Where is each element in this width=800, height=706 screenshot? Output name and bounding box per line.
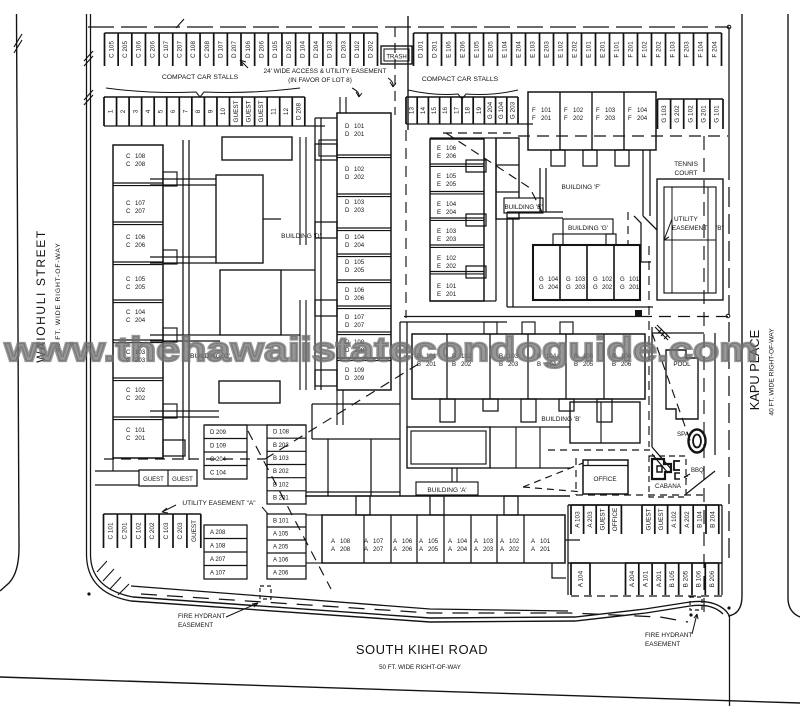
svg-text:201: 201 (446, 291, 457, 298)
svg-text:204: 204 (637, 115, 648, 122)
svg-text:207: 207 (135, 208, 146, 215)
svg-text:E: E (437, 228, 441, 235)
svg-text:50 FT. WIDE RIGHT-OF-WAY: 50 FT. WIDE RIGHT-OF-WAY (379, 664, 461, 671)
svg-text:101: 101 (354, 123, 365, 130)
svg-text:6: 6 (170, 109, 177, 113)
svg-text:102: 102 (602, 276, 613, 283)
svg-text:206: 206 (402, 546, 413, 553)
svg-text:E 106: E 106 (446, 41, 453, 58)
svg-text:E 104: E 104 (502, 41, 509, 58)
svg-text:8: 8 (195, 109, 202, 113)
svg-text:UTILITY EASEMENT "A": UTILITY EASEMENT "A" (182, 500, 256, 507)
svg-text:C 208: C 208 (204, 41, 211, 58)
svg-text:D: D (345, 259, 350, 266)
svg-text:203: 203 (483, 546, 494, 553)
svg-text:C: C (126, 153, 131, 160)
svg-text:203: 203 (354, 207, 365, 214)
svg-text:17: 17 (453, 107, 460, 115)
svg-text:F: F (596, 107, 600, 114)
svg-text:E 105: E 105 (474, 41, 481, 58)
svg-text:106: 106 (135, 234, 146, 241)
svg-text:D: D (345, 174, 350, 181)
svg-text:D: D (345, 295, 350, 302)
svg-text:A 102: A 102 (671, 511, 678, 528)
svg-text:EASEMENT: EASEMENT (178, 622, 213, 629)
svg-text:C 105: C 105 (108, 41, 115, 58)
svg-text:103: 103 (483, 538, 494, 545)
svg-text:104: 104 (548, 276, 559, 283)
svg-text:C 206: C 206 (149, 41, 156, 58)
svg-text:F: F (532, 115, 536, 122)
svg-text:C: C (126, 234, 131, 241)
svg-text:BUILDING 'F': BUILDING 'F' (562, 184, 601, 191)
svg-text:F: F (564, 115, 568, 122)
svg-text:B 104: B 104 (697, 511, 704, 528)
svg-text:E 201: E 201 (600, 41, 607, 58)
svg-text:C: C (126, 284, 131, 291)
svg-text:202: 202 (446, 263, 457, 270)
svg-text:C: C (126, 309, 131, 316)
svg-text:C: C (126, 200, 131, 207)
svg-text:F: F (564, 107, 568, 114)
svg-text:D 201: D 201 (432, 41, 439, 58)
svg-text:FIRE HYDRANT: FIRE HYDRANT (178, 613, 225, 620)
svg-text:B 101: B 101 (273, 519, 289, 525)
svg-text:202: 202 (354, 174, 365, 181)
svg-text:D: D (345, 123, 350, 130)
svg-text:106: 106 (402, 538, 413, 545)
svg-text:D 101: D 101 (418, 41, 425, 58)
svg-text:13: 13 (409, 107, 416, 115)
svg-text:D 204: D 204 (313, 41, 320, 58)
svg-text:E 102: E 102 (558, 41, 565, 58)
svg-text:104: 104 (637, 107, 648, 114)
svg-text:G: G (620, 284, 625, 291)
svg-text:www.thehawaiistatecondoguide.c: www.thehawaiistatecondoguide.com (3, 331, 757, 369)
svg-text:F 102: F 102 (642, 41, 649, 58)
svg-text:A 108: A 108 (210, 543, 226, 549)
svg-text:204: 204 (548, 284, 559, 291)
svg-text:105: 105 (428, 538, 439, 545)
svg-text:D 105: D 105 (272, 41, 279, 58)
svg-text:D: D (345, 322, 350, 329)
svg-text:G 101: G 101 (713, 105, 720, 123)
svg-text:D: D (345, 131, 350, 138)
svg-text:D: D (345, 375, 350, 382)
svg-text:4: 4 (145, 109, 152, 113)
svg-text:G 102: G 102 (687, 105, 694, 123)
svg-text:OFFICE: OFFICE (593, 476, 616, 483)
svg-text:CABANA: CABANA (655, 483, 682, 490)
svg-text:C: C (126, 317, 131, 324)
svg-text:D 202: D 202 (368, 41, 375, 58)
svg-text:G: G (620, 276, 625, 283)
svg-text:C 108: C 108 (190, 41, 197, 58)
svg-text:C: C (126, 427, 131, 434)
svg-text:F 104: F 104 (698, 41, 705, 58)
svg-text:7: 7 (183, 109, 190, 113)
svg-text:F 204: F 204 (712, 41, 719, 58)
svg-text:'B': 'B' (716, 225, 723, 232)
svg-text:103: 103 (605, 107, 616, 114)
svg-text:40 FT. WIDE RIGHT-OF-WAY: 40 FT. WIDE RIGHT-OF-WAY (769, 328, 776, 416)
svg-text:D 103: D 103 (327, 41, 334, 58)
svg-text:101: 101 (446, 283, 457, 290)
svg-text:BUILDING 'D': BUILDING 'D' (281, 233, 321, 240)
svg-text:A 104: A 104 (578, 570, 585, 587)
svg-text:E: E (437, 181, 441, 188)
svg-text:GUEST: GUEST (658, 508, 665, 530)
svg-text:3: 3 (132, 109, 139, 113)
svg-text:201: 201 (354, 131, 365, 138)
svg-text:208: 208 (135, 161, 146, 168)
svg-text:C 204: C 204 (210, 457, 227, 463)
svg-text:C 101: C 101 (107, 522, 114, 539)
svg-text:GUEST: GUEST (645, 508, 652, 530)
svg-text:205: 205 (135, 284, 146, 291)
svg-text:D 207: D 207 (231, 41, 238, 58)
svg-text:F 202: F 202 (656, 41, 663, 58)
svg-text:102: 102 (446, 255, 457, 262)
svg-text:101: 101 (541, 107, 552, 114)
svg-text:D: D (345, 242, 350, 249)
svg-text:12: 12 (283, 108, 290, 116)
svg-text:G: G (593, 284, 598, 291)
svg-text:COMPACT CAR STALLS: COMPACT CAR STALLS (162, 74, 239, 81)
svg-text:BUILDING 'G': BUILDING 'G' (568, 225, 608, 232)
svg-text:E: E (437, 209, 441, 216)
svg-text:F: F (596, 115, 600, 122)
svg-text:E: E (437, 236, 441, 243)
svg-text:F: F (628, 115, 632, 122)
svg-text:E 202: E 202 (572, 41, 579, 58)
svg-text:205: 205 (428, 546, 439, 553)
svg-text:EASEMENT: EASEMENT (672, 225, 707, 232)
svg-text:D: D (345, 166, 350, 173)
svg-text:C 203: C 203 (177, 522, 184, 539)
svg-text:11: 11 (270, 108, 277, 115)
svg-text:C: C (126, 208, 131, 215)
svg-text:(IN FAVOR OF LOT 8): (IN FAVOR OF LOT 8) (288, 77, 352, 84)
svg-text:BUILDING 'E': BUILDING 'E' (504, 204, 542, 211)
svg-text:2: 2 (120, 109, 127, 113)
svg-text:D 106: D 106 (245, 41, 252, 58)
svg-text:BUILDING 'B': BUILDING 'B' (541, 416, 580, 423)
svg-text:GUEST: GUEST (191, 520, 198, 542)
svg-text:C 201: C 201 (121, 522, 128, 539)
svg-text:G 104: G 104 (498, 101, 505, 119)
svg-text:101: 101 (135, 427, 146, 434)
svg-text:D 203: D 203 (340, 41, 347, 58)
svg-text:C: C (126, 435, 131, 442)
svg-text:10: 10 (220, 108, 227, 116)
svg-text:C: C (126, 395, 131, 402)
svg-text:105: 105 (354, 259, 365, 266)
svg-text:D 108: D 108 (273, 430, 290, 436)
svg-text:102: 102 (573, 107, 584, 114)
svg-text:204: 204 (135, 317, 146, 324)
svg-text:A 208: A 208 (210, 530, 226, 536)
svg-text:D 107: D 107 (218, 41, 225, 58)
svg-text:A 207: A 207 (210, 557, 226, 563)
svg-text:G: G (539, 284, 544, 291)
svg-text:C 106: C 106 (136, 41, 143, 58)
svg-text:UTILITY: UTILITY (674, 216, 699, 223)
svg-text:A 201: A 201 (656, 570, 663, 587)
svg-text:C: C (126, 242, 131, 249)
svg-text:107: 107 (354, 314, 365, 321)
svg-text:C 207: C 207 (177, 41, 184, 58)
svg-text:106: 106 (446, 145, 457, 152)
svg-text:105: 105 (446, 173, 457, 180)
svg-text:BUILDING 'A': BUILDING 'A' (427, 487, 466, 494)
svg-text:G 103: G 103 (661, 105, 668, 123)
svg-text:G 203: G 203 (509, 101, 516, 119)
svg-text:F 103: F 103 (670, 41, 677, 58)
svg-text:A 205: A 205 (273, 545, 289, 551)
svg-text:B 202: B 202 (273, 469, 289, 475)
svg-text:101: 101 (629, 276, 640, 283)
svg-text:5: 5 (157, 109, 164, 113)
svg-text:A 107: A 107 (210, 570, 226, 576)
svg-text:102: 102 (135, 387, 146, 394)
svg-text:108: 108 (135, 153, 146, 160)
svg-text:24' WIDE ACCESS & UTILITY EASE: 24' WIDE ACCESS & UTILITY EASEMENT (264, 68, 387, 75)
svg-text:D 206: D 206 (258, 41, 265, 58)
svg-text:GUEST: GUEST (143, 477, 164, 483)
svg-text:D: D (345, 287, 350, 294)
svg-text:D: D (345, 207, 350, 214)
svg-text:A 202: A 202 (684, 511, 691, 528)
svg-text:C: C (126, 161, 131, 168)
svg-text:B 206: B 206 (709, 570, 716, 587)
svg-text:14: 14 (420, 107, 427, 115)
svg-text:206: 206 (135, 242, 146, 249)
svg-text:18: 18 (465, 107, 472, 115)
svg-text:COURT: COURT (675, 170, 698, 177)
svg-text:SOUTH KIHEI ROAD: SOUTH KIHEI ROAD (356, 642, 488, 657)
svg-text:C 202: C 202 (149, 522, 156, 539)
svg-text:104: 104 (446, 201, 457, 208)
svg-text:G: G (566, 276, 571, 283)
svg-text:TENNIS: TENNIS (674, 161, 699, 168)
svg-text:A 101: A 101 (642, 570, 649, 587)
svg-text:BBQ: BBQ (691, 468, 704, 474)
svg-text:106: 106 (354, 287, 365, 294)
svg-text:E 205: E 205 (488, 41, 495, 58)
svg-text:108: 108 (340, 538, 351, 545)
svg-text:202: 202 (509, 546, 520, 553)
svg-text:205: 205 (446, 181, 457, 188)
svg-text:202: 202 (602, 284, 613, 291)
svg-text:C 205: C 205 (122, 41, 129, 58)
svg-text:G: G (539, 276, 544, 283)
svg-text:206: 206 (354, 295, 365, 302)
svg-text:B 105: B 105 (669, 570, 676, 587)
svg-text:1: 1 (107, 109, 114, 113)
svg-text:102: 102 (509, 538, 520, 545)
svg-text:202: 202 (573, 115, 584, 122)
svg-text:103: 103 (354, 199, 365, 206)
svg-text:203: 203 (575, 284, 586, 291)
svg-text:E: E (437, 283, 441, 290)
svg-text:OFFICE: OFFICE (612, 508, 619, 531)
svg-text:A 106: A 106 (273, 558, 289, 564)
svg-text:A 105: A 105 (273, 532, 289, 538)
svg-text:C 107: C 107 (163, 41, 170, 58)
svg-text:E 101: E 101 (586, 41, 593, 58)
svg-text:C 102: C 102 (135, 522, 142, 539)
svg-text:D 109: D 109 (210, 443, 227, 449)
svg-text:COMPACT CAR STALLS: COMPACT CAR STALLS (422, 76, 499, 83)
svg-text:F: F (532, 107, 536, 114)
svg-text:E 203: E 203 (544, 41, 551, 58)
svg-text:B 103: B 103 (273, 456, 289, 462)
svg-text:FIRE HYDRANT: FIRE HYDRANT (645, 632, 692, 639)
svg-text:E 204: E 204 (516, 41, 523, 58)
svg-text:GUEST: GUEST (600, 508, 607, 530)
svg-text:A 204: A 204 (629, 570, 636, 587)
svg-text:D: D (345, 199, 350, 206)
svg-text:E 206: E 206 (460, 41, 467, 58)
svg-text:C: C (126, 387, 131, 394)
svg-text:GUEST: GUEST (172, 477, 193, 483)
svg-text:103: 103 (575, 276, 586, 283)
svg-text:E: E (437, 173, 441, 180)
svg-text:D 205: D 205 (286, 41, 293, 58)
svg-text:9: 9 (208, 109, 215, 113)
svg-text:201: 201 (629, 284, 640, 291)
svg-text:A 206: A 206 (273, 571, 289, 577)
svg-text:205: 205 (354, 267, 365, 274)
svg-text:102: 102 (354, 166, 365, 173)
svg-text:B 204: B 204 (709, 511, 716, 528)
svg-text:103: 103 (446, 228, 457, 235)
svg-text:D 102: D 102 (354, 41, 361, 58)
svg-text:209: 209 (354, 375, 365, 382)
svg-text:19: 19 (476, 107, 483, 115)
svg-text:203: 203 (605, 115, 616, 122)
svg-text:204: 204 (446, 209, 457, 216)
svg-text:G: G (566, 284, 571, 291)
svg-text:107: 107 (373, 538, 384, 545)
svg-text:F: F (628, 107, 632, 114)
svg-text:F 101: F 101 (614, 41, 621, 58)
svg-text:107: 107 (135, 200, 146, 207)
svg-text:E: E (437, 263, 441, 270)
svg-text:B 106: B 106 (696, 570, 703, 587)
svg-text:TRASH: TRASH (386, 55, 406, 61)
svg-text:D: D (345, 267, 350, 274)
svg-text:105: 105 (135, 276, 146, 283)
svg-text:G 204: G 204 (487, 101, 494, 119)
svg-text:207: 207 (373, 546, 384, 553)
svg-text:201: 201 (135, 435, 146, 442)
svg-text:B 201: B 201 (273, 495, 289, 501)
svg-text:104: 104 (354, 234, 365, 241)
svg-text:G: G (593, 276, 598, 283)
svg-text:E: E (437, 201, 441, 208)
svg-text:C 104: C 104 (210, 470, 227, 476)
svg-text:206: 206 (446, 153, 457, 160)
svg-text:G 202: G 202 (674, 105, 681, 123)
svg-text:104: 104 (457, 538, 468, 545)
svg-text:D: D (345, 314, 350, 321)
svg-text:104: 104 (135, 309, 146, 316)
svg-text:E: E (437, 291, 441, 298)
svg-text:101: 101 (540, 538, 551, 545)
svg-text:E: E (437, 153, 441, 160)
svg-text:G 201: G 201 (700, 105, 707, 123)
svg-text:204: 204 (354, 242, 365, 249)
svg-text:C 103: C 103 (163, 522, 170, 539)
svg-text:B 205: B 205 (682, 570, 689, 587)
svg-text:16: 16 (442, 107, 449, 115)
svg-text:15: 15 (431, 107, 438, 115)
svg-text:EASEMENT: EASEMENT (645, 641, 680, 648)
svg-text:D 209: D 209 (210, 430, 227, 436)
svg-text:201: 201 (541, 115, 552, 122)
svg-text:207: 207 (354, 322, 365, 329)
svg-text:E 103: E 103 (530, 41, 537, 58)
svg-text:F 201: F 201 (628, 41, 635, 58)
svg-text:D: D (345, 234, 350, 241)
svg-text:208: 208 (340, 546, 351, 553)
svg-text:201: 201 (540, 546, 551, 553)
svg-text:GUEST: GUEST (233, 100, 240, 122)
svg-text:D 104: D 104 (299, 41, 306, 58)
svg-text:F 203: F 203 (684, 41, 691, 58)
svg-text:204: 204 (457, 546, 468, 553)
svg-text:GUEST: GUEST (258, 100, 265, 122)
svg-text:A 203: A 203 (587, 511, 594, 528)
svg-text:A 103: A 103 (574, 511, 581, 528)
svg-text:C: C (126, 276, 131, 283)
svg-text:E: E (437, 145, 441, 152)
svg-text:D 208: D 208 (296, 103, 303, 120)
svg-text:GUEST: GUEST (245, 100, 252, 122)
svg-text:202: 202 (135, 395, 146, 402)
svg-text:203: 203 (446, 236, 457, 243)
svg-text:E: E (437, 255, 441, 262)
